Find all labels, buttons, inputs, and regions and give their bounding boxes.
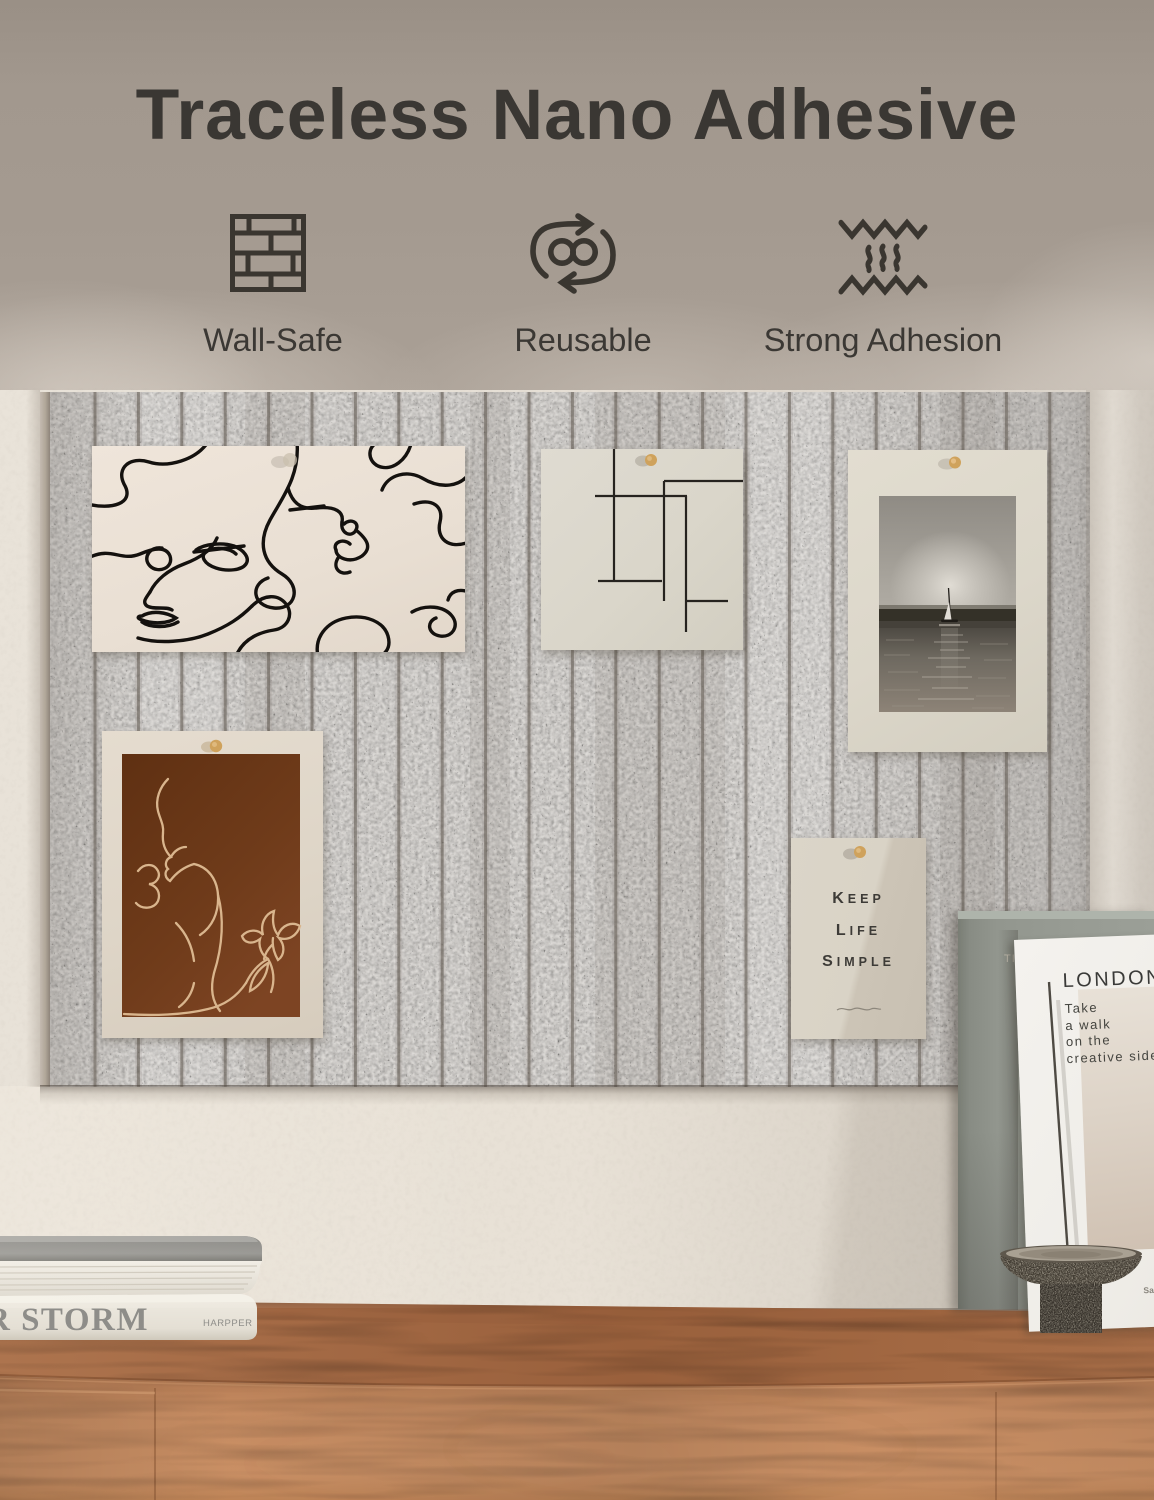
svg-text:R STORM: R STORM <box>0 1302 149 1338</box>
svg-text:HARPPER: HARPPER <box>203 1318 252 1329</box>
